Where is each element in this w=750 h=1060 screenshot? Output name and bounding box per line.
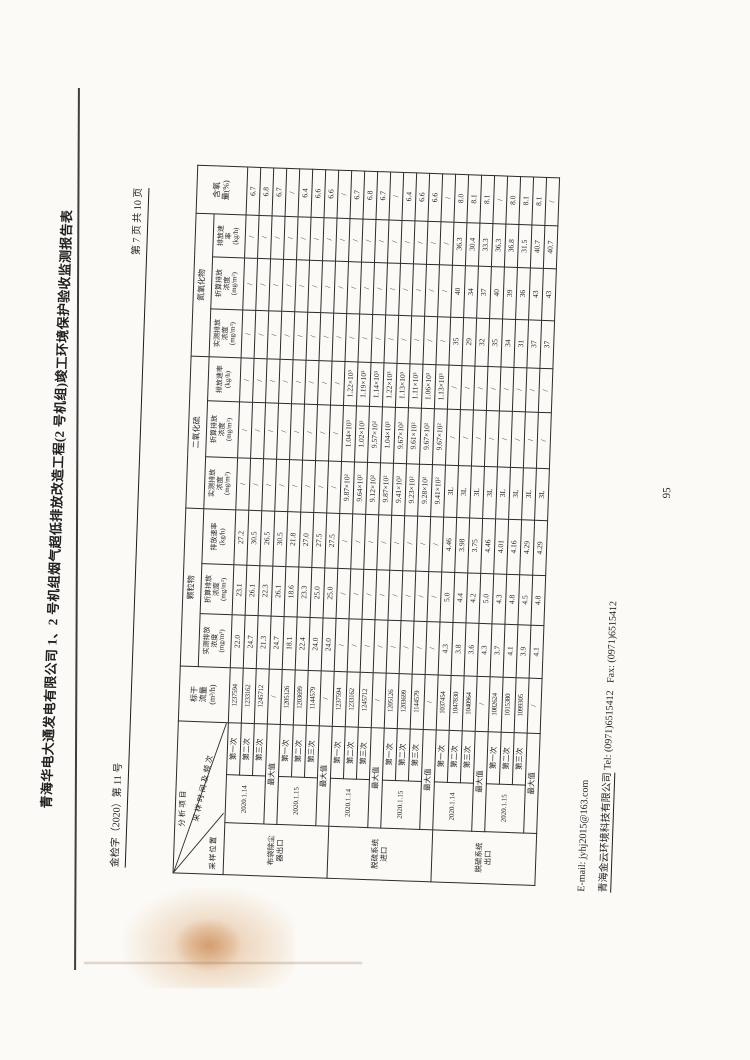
position-cell: 脱硫系统 出口 bbox=[431, 830, 537, 886]
value-cell: 3L bbox=[535, 468, 550, 520]
value-cell: 37 bbox=[540, 320, 555, 368]
paper-stain-streak bbox=[84, 962, 362, 964]
date-cell: 2020.1.15 bbox=[381, 780, 422, 829]
document-header-line: 金检字（2020）第 11 号 第 7 页 共 10 页 bbox=[106, 187, 150, 867]
footer-fax-gap bbox=[605, 683, 616, 688]
flow-cell: / bbox=[527, 678, 542, 733]
value-cell: 43 bbox=[542, 268, 557, 320]
header-sub-1-2: 排放速率 (kg/h) bbox=[208, 357, 242, 402]
footer-tel-value: Tel: (0971)6515412 bbox=[602, 690, 616, 770]
footer-company-name: 青海金云环境科技有限公司 bbox=[598, 772, 615, 892]
rotated-document: 青海华电大通发电有限公司 1、2 号机组烟气超低排放改造工程(2 号机组)竣工环… bbox=[27, 139, 712, 902]
position-cell: 布袋除尘 器出口 bbox=[223, 823, 329, 879]
header-sub-0-0: 实测排放 浓度 (mg/m³) bbox=[198, 614, 232, 668]
header-sub-1-1: 折算排放 浓度 (mg/m³) bbox=[206, 401, 240, 458]
value-cell: 4.1 bbox=[529, 625, 544, 678]
doc-number: 金检字（2020）第 11 号 bbox=[106, 762, 125, 867]
table-body: 布袋除尘 器出口2020.1.14第一次123759422.023.127.2/… bbox=[223, 167, 560, 885]
value-cell: / bbox=[545, 177, 560, 225]
max-label-cell: 最大值 bbox=[524, 733, 540, 833]
date-cell: 2020.1.14 bbox=[225, 775, 266, 824]
value-cell: / bbox=[538, 368, 553, 412]
value-cell: / bbox=[536, 412, 551, 468]
footer-fax-value: Fax: (0971)6515412 bbox=[605, 601, 619, 683]
value-cell: 4.8 bbox=[531, 575, 546, 625]
value-cell: 40.7 bbox=[543, 225, 557, 268]
header-flow: 标干 流量 (m³/h) bbox=[178, 666, 230, 723]
header-o2: 含氧 量(%) bbox=[196, 165, 248, 215]
page-number: 95 bbox=[661, 487, 673, 498]
header-sub-0-1: 折算排放 浓度 (mg/m³) bbox=[200, 564, 234, 615]
header-sub-2-1: 折算排放 浓度 (mg/m³) bbox=[211, 257, 245, 310]
date-cell: 2020.1.15 bbox=[277, 776, 318, 825]
scanned-page: 青海华电大通发电有限公司 1、2 号机组烟气超低排放改造工程(2 号机组)竣工环… bbox=[0, 0, 750, 1060]
date-cell: 2020.1.14 bbox=[329, 778, 370, 827]
date-cell: 2020.1.15 bbox=[485, 784, 526, 833]
monitoring-table: 分析项目采样时间及频次采样位置标干 流量 (m³/h)颗粒物二氧化硫氮氧化物含氧… bbox=[173, 165, 561, 886]
corner-label-sampling-position: 采样位置 bbox=[209, 836, 219, 870]
header-sub-0-2: 排放速率 (kg/h) bbox=[202, 509, 236, 565]
position-cell: 脱硫系统 进口 bbox=[327, 826, 433, 882]
date-cell: 2020.1.14 bbox=[433, 782, 474, 831]
footer-email: E-mail: jyhj2015@163.com bbox=[576, 780, 591, 892]
header-sub-2-0: 实测排放 浓度 (mg/m³) bbox=[209, 309, 243, 358]
value-cell: 4.29 bbox=[533, 520, 548, 575]
paper-stain bbox=[124, 888, 294, 988]
report-title: 青海华电大通发电有限公司 1、2 号机组烟气超低排放改造工程(2 号机组)竣工环… bbox=[34, 167, 77, 851]
header-sub-2-2: 排放速 率 (kg/h) bbox=[213, 214, 246, 258]
corner-cell: 分析项目采样时间及频次采样位置 bbox=[173, 721, 228, 875]
header-sub-1-0: 实测排放 浓度 (mg/m³) bbox=[204, 457, 238, 510]
page-indicator: 第 7 页 共 10 页 bbox=[127, 187, 144, 255]
corner-label-analysis-item: 分析项目 bbox=[178, 789, 188, 827]
footer-company-line: 青海金云环境科技有限公司 Tel: (0971)6515412 Fax: (09… bbox=[594, 601, 619, 893]
